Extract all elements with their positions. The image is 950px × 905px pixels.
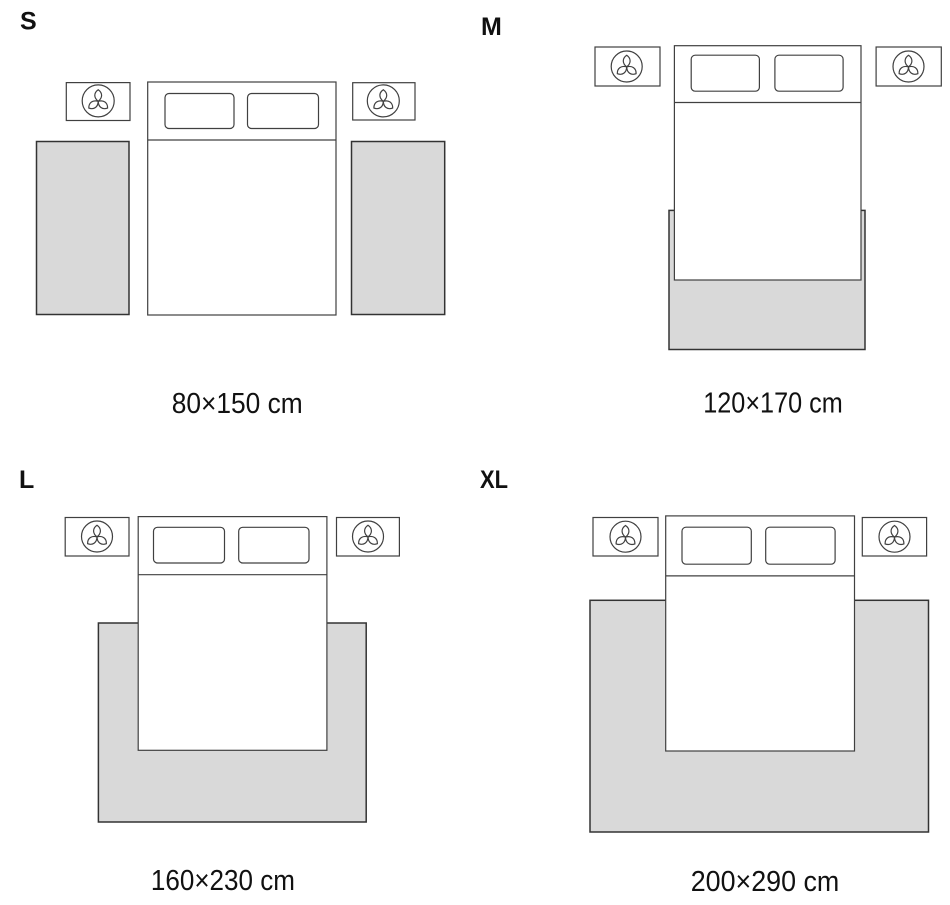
svg-text:L: L — [19, 466, 34, 494]
svg-text:XL: XL — [480, 466, 508, 494]
svg-text:80×150 cm: 80×150 cm — [172, 388, 303, 420]
svg-text:160×230 cm: 160×230 cm — [151, 865, 295, 897]
svg-text:M: M — [481, 13, 502, 41]
svg-text:S: S — [20, 7, 37, 35]
svg-text:120×170 cm: 120×170 cm — [703, 388, 843, 420]
svg-text:200×290 cm: 200×290 cm — [691, 866, 840, 898]
